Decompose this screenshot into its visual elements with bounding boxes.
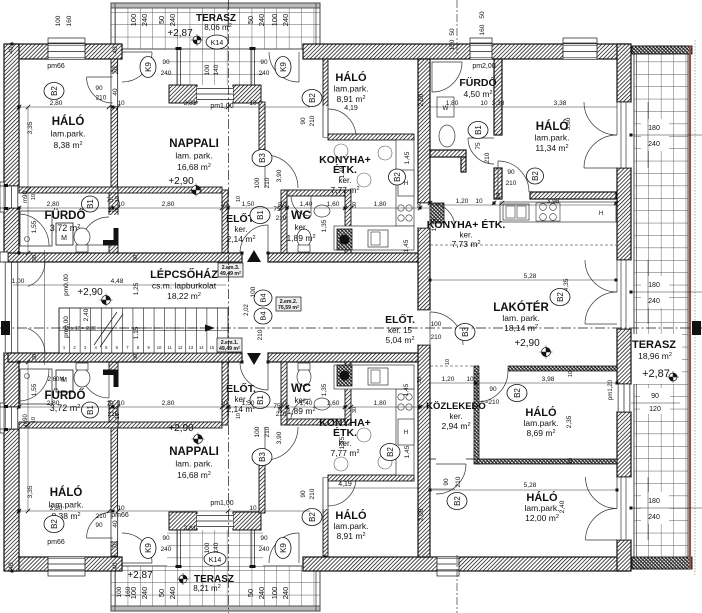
svg-text:HÁLÓ: HÁLÓ [335,71,367,84]
svg-text:10: 10 [249,505,257,512]
svg-text:1,50: 1,50 [242,201,255,208]
svg-text:1,45: 1,45 [339,165,346,178]
svg-text:90: 90 [95,85,103,92]
svg-text:B1: B1 [256,395,265,405]
svg-text:ker. 15: ker. 15 [388,326,413,335]
svg-text:40: 40 [8,562,15,570]
svg-text:10: 10 [568,371,574,377]
svg-text:10: 10 [466,376,474,383]
svg-text:240: 240 [161,546,172,553]
svg-text:lam. park.: lam. park. [502,313,539,323]
svg-text:90: 90 [162,535,170,542]
svg-text:10: 10 [445,359,451,365]
svg-text:30: 30 [352,407,358,413]
svg-text:12: 12 [178,345,183,350]
svg-text:100: 100 [55,15,62,26]
svg-text:30: 30 [32,354,38,360]
svg-text:8,06 m2: 8,06 m2 [204,23,232,32]
svg-text:pm1,00: pm1,00 [210,103,233,110]
svg-text:180: 180 [648,125,660,132]
svg-text:3,38: 3,38 [554,100,567,107]
svg-text:100: 100 [250,286,257,297]
svg-text:1,60: 1,60 [327,400,340,407]
svg-text:1,20: 1,20 [456,198,469,205]
svg-text:1,45: 1,45 [403,239,410,252]
svg-text:1,45: 1,45 [404,445,411,458]
svg-text:10: 10 [480,100,488,107]
svg-text:210: 210 [276,411,287,418]
svg-text:18,22 m2: 18,22 m2 [167,291,201,301]
svg-text:2,80: 2,80 [162,400,175,407]
svg-text:2,14 m2: 2,14 m2 [226,234,255,244]
svg-text:240: 240 [259,546,270,553]
svg-text:+2,90: +2,90 [168,423,194,434]
svg-text:240: 240 [259,70,270,77]
svg-text:50: 50 [157,589,166,597]
svg-text:B2: B2 [50,519,59,529]
svg-text:12,00 m2: 12,00 m2 [525,513,559,523]
svg-text:10: 10 [496,193,502,199]
svg-text:10: 10 [568,458,574,464]
svg-text:1,55: 1,55 [31,220,38,233]
svg-text:+2,90: +2,90 [168,176,194,187]
svg-text:30: 30 [417,377,423,383]
svg-text:pm66: pm66 [111,512,129,519]
svg-text:30: 30 [352,202,358,208]
svg-text:2,40: 2,40 [83,308,90,321]
svg-text:40: 40 [112,46,119,54]
svg-text:90: 90 [300,117,307,125]
svg-text:lam.park.: lam.park. [334,84,369,94]
svg-text:lam.park.: lam.park. [525,503,560,513]
svg-text:NAPPALI: NAPPALI [169,138,219,150]
svg-text:3,60: 3,60 [565,117,572,130]
svg-text:B2: B2 [513,388,522,398]
svg-text:ker.: ker. [295,223,308,232]
svg-text:B2: B2 [531,171,540,181]
svg-text:210: 210 [257,329,264,340]
svg-text:lam.park.: lam.park. [535,133,570,143]
svg-text:8,91 m2: 8,91 m2 [336,94,365,104]
svg-text:30: 30 [32,255,38,261]
svg-text:4,35: 4,35 [563,278,570,291]
svg-text:3,98: 3,98 [542,376,555,383]
svg-text:210: 210 [96,513,107,520]
svg-text:150: 150 [449,39,456,50]
svg-text:2,94 m2: 2,94 m2 [441,421,470,431]
svg-text:100: 100 [270,14,279,27]
svg-text:B2: B2 [50,86,59,96]
svg-text:KÖZLEKEDŐ: KÖZLEKEDŐ [426,400,486,412]
svg-text:LÉPCSŐHÁZ: LÉPCSŐHÁZ [150,268,218,281]
svg-text:2,80: 2,80 [162,201,175,208]
svg-text:WC: WC [291,208,311,222]
svg-text:90: 90 [507,169,515,176]
svg-text:10: 10 [157,345,162,350]
svg-text:B2: B2 [308,93,317,103]
svg-text:pm0,00: pm0,00 [63,316,70,338]
svg-text:210: 210 [264,177,271,188]
svg-text:11,34 m2: 11,34 m2 [535,143,568,153]
svg-text:HÁLÓ: HÁLÓ [536,120,569,133]
svg-text:HÁLÓ: HÁLÓ [50,486,83,499]
svg-text:10: 10 [236,196,242,202]
svg-text:B2: B2 [308,512,317,522]
svg-text:B3: B3 [258,153,267,163]
svg-text:180: 180 [648,282,660,289]
svg-text:90: 90 [651,393,659,400]
svg-text:49,49 m2: 49,49 m2 [219,346,240,353]
svg-text:1,89 m2: 1,89 m2 [286,406,315,416]
svg-text:240: 240 [140,587,149,600]
svg-text:1,60: 1,60 [327,201,340,208]
svg-text:TERASZ: TERASZ [632,339,676,351]
svg-text:210: 210 [96,95,107,102]
svg-text:1,50: 1,50 [242,400,255,407]
svg-text:K9: K9 [279,62,288,72]
svg-text:K9: K9 [144,543,153,553]
svg-text:1,35: 1,35 [321,219,328,232]
svg-text:8,38 m2: 8,38 m2 [53,140,82,150]
svg-text:30: 30 [417,202,423,208]
svg-text:lam.park.: lam.park. [524,418,559,428]
svg-text:K9: K9 [279,543,288,553]
svg-text:50: 50 [157,16,166,24]
svg-text:K9: K9 [144,62,153,72]
svg-text:160: 160 [479,24,486,35]
svg-text:ELŐT.: ELŐT. [226,382,256,395]
svg-text:KONYHA+ ÉTK.: KONYHA+ ÉTK. [427,218,506,231]
svg-text:1,89 m2: 1,89 m2 [286,233,315,243]
svg-text:240: 240 [281,587,290,600]
svg-text:90: 90 [489,386,497,393]
svg-text:240: 240 [257,587,266,600]
svg-text:3,90: 3,90 [276,431,283,444]
svg-text:240: 240 [161,70,172,77]
svg-text:240: 240 [168,587,177,600]
svg-text:1,80: 1,80 [374,400,387,407]
svg-text:5,04 m2: 5,04 m2 [385,335,414,345]
svg-text:16,68 m2: 16,68 m2 [177,470,211,480]
svg-text:HÁLÓ: HÁLÓ [52,115,85,128]
svg-text:1,20: 1,20 [442,376,455,383]
svg-text:3,98: 3,98 [547,198,560,205]
svg-text:40: 40 [112,88,119,96]
svg-text:140: 140 [213,64,220,75]
svg-text:+2,90: +2,90 [77,287,103,298]
svg-text:240: 240 [648,141,660,148]
svg-text:4,50 m2: 4,50 m2 [463,89,492,99]
svg-text:B2: B2 [393,172,402,182]
svg-text:ker.: ker. [235,225,248,234]
svg-text:30: 30 [133,354,139,360]
svg-text:3,81: 3,81 [184,525,197,532]
svg-text:2,80: 2,80 [47,400,60,407]
svg-text:2,80: 2,80 [50,100,63,107]
svg-text:+2,87: +2,87 [167,28,193,39]
svg-text:pm2,00: pm2,00 [472,63,495,70]
svg-text:B4: B4 [259,311,268,320]
svg-text:90: 90 [300,490,307,498]
svg-text:210: 210 [309,115,316,126]
svg-text:B1: B1 [256,210,265,220]
svg-text:10: 10 [31,194,37,200]
svg-text:100: 100 [129,14,138,27]
svg-text:14: 14 [199,345,204,350]
svg-text:B1: B1 [474,125,483,135]
svg-text:lam. park.: lam. park. [175,151,212,161]
svg-text:1,35: 1,35 [321,383,328,396]
svg-text:2,00: 2,00 [418,93,425,106]
svg-text:2,80: 2,80 [47,201,60,208]
svg-text:B1: B1 [86,405,95,415]
svg-text:1,45: 1,45 [404,151,411,164]
svg-text:16,68 m2: 16,68 m2 [177,162,211,172]
svg-text:100: 100 [270,587,279,600]
svg-text:B2: B2 [556,292,565,302]
svg-text:11: 11 [167,345,172,350]
svg-text:3,38: 3,38 [492,100,505,107]
svg-text:4,48: 4,48 [111,278,124,285]
svg-text:+2,90: +2,90 [514,338,540,349]
svg-text:ELŐT.: ELŐT. [385,313,415,326]
svg-text:8,21 m2: 8,21 m2 [193,584,221,593]
svg-text:pm66: pm66 [47,63,65,70]
svg-text:240: 240 [257,14,266,27]
svg-text:75: 75 [273,403,281,410]
svg-text:240: 240 [140,14,149,27]
svg-text:1,00: 1,00 [12,278,25,285]
svg-text:75: 75 [475,142,482,150]
svg-text:lam.park.: lam.park. [334,521,369,531]
svg-text:cs.m. lapburkolat: cs.m. lapburkolat [152,281,217,291]
svg-text:90: 90 [260,59,268,66]
svg-text:40: 40 [112,562,119,570]
svg-text:pm1,00: pm1,00 [210,500,233,507]
svg-text:3,81: 3,81 [184,100,197,107]
svg-text:lam. park.: lam. park. [175,459,212,469]
svg-text:18,96 m2: 18,96 m2 [638,351,672,361]
svg-text:10: 10 [249,100,257,107]
svg-text:240: 240 [281,14,290,27]
svg-text:NAPPALI: NAPPALI [169,446,219,458]
svg-text:90: 90 [443,478,450,486]
svg-text:210: 210 [455,476,462,487]
svg-text:5,28: 5,28 [524,273,537,280]
svg-text:2,40: 2,40 [559,500,566,513]
svg-text:8,69 m2: 8,69 m2 [526,428,555,438]
svg-text:2,02: 2,02 [244,304,250,316]
svg-text:76,59 m2: 76,59 m2 [278,305,299,312]
svg-text:+2,87: +2,87 [642,368,670,380]
svg-text:1,25: 1,25 [133,282,140,295]
svg-text:100: 100 [116,586,123,597]
svg-text:10: 10 [236,413,242,419]
svg-text:1,80: 1,80 [374,201,387,208]
svg-text:90: 90 [260,535,268,542]
svg-text:B4: B4 [259,293,268,302]
svg-text:40: 40 [112,520,119,528]
svg-text:160: 160 [125,586,132,597]
svg-text:8,91 m2: 8,91 m2 [336,531,365,541]
svg-text:240: 240 [648,514,660,521]
svg-text:100: 100 [204,542,211,553]
svg-text:50: 50 [449,28,456,36]
svg-text:15: 15 [210,345,215,350]
svg-text:B2: B2 [453,496,462,506]
svg-text:M: M [61,377,67,384]
svg-text:90: 90 [162,59,170,66]
svg-text:10: 10 [115,196,121,202]
svg-text:≈210: ≈210 [485,399,500,406]
svg-text:ker.: ker. [450,412,463,421]
svg-text:pm1,20: pm1,20 [608,379,614,400]
svg-text:100: 100 [254,426,261,437]
svg-text:B1: B1 [86,199,95,209]
svg-text:70: 70 [112,66,119,74]
svg-text:50: 50 [246,589,255,597]
svg-text:210: 210 [484,152,491,163]
svg-text:H: H [404,430,408,436]
svg-text:13: 13 [188,345,193,350]
svg-text:2,35: 2,35 [566,415,573,428]
svg-text:7,77 m2: 7,77 m2 [330,185,359,195]
svg-text:49,49 m2: 49,49 m2 [220,271,241,278]
svg-text:75: 75 [106,197,114,204]
svg-text:210: 210 [264,426,271,437]
svg-text:1,35: 1,35 [431,218,438,231]
svg-text:100: 100 [254,177,261,188]
svg-text:WC: WC [291,381,311,395]
svg-text:120: 120 [649,406,661,413]
svg-text:4,19: 4,19 [344,105,358,112]
svg-text:2,00: 2,00 [418,508,425,521]
svg-text:K14: K14 [211,40,224,47]
svg-text:4,19: 4,19 [338,481,352,488]
svg-text:50: 50 [246,16,255,24]
svg-text:100: 100 [431,321,442,328]
svg-text:K14: K14 [209,557,222,564]
svg-text:50: 50 [479,11,486,19]
svg-text:10: 10 [475,198,483,205]
svg-text:30: 30 [133,255,139,261]
svg-text:90: 90 [95,522,103,529]
svg-text:100: 100 [204,64,211,75]
svg-text:240: 240 [168,14,177,27]
svg-text:1,80: 1,80 [446,100,459,107]
svg-text:140: 140 [213,542,220,553]
svg-text:1,45: 1,45 [339,436,346,449]
svg-text:1,45: 1,45 [403,383,410,396]
svg-text:160: 160 [66,15,73,26]
svg-text:180: 180 [648,498,660,505]
svg-text:10: 10 [115,413,121,419]
svg-text:240: 240 [648,298,660,305]
svg-text:H: H [599,211,603,217]
svg-text:10: 10 [31,417,37,423]
svg-text:M: M [61,235,67,242]
svg-text:40: 40 [8,46,15,54]
svg-text:210: 210 [309,488,316,499]
svg-text:pm66: pm66 [47,539,65,546]
svg-text:5,28: 5,28 [524,482,537,489]
svg-text:B3: B3 [258,452,267,462]
svg-text:7,73 m2: 7,73 m2 [451,239,480,249]
svg-text:210: 210 [506,180,517,187]
svg-text:lam.park.: lam.park. [51,129,86,139]
svg-text:3,90: 3,90 [276,169,283,182]
svg-text:B2: B2 [386,447,395,457]
svg-text:210: 210 [431,334,442,341]
svg-text:70: 70 [112,541,119,549]
svg-text:FÜRDŐ: FÜRDŐ [459,76,496,89]
svg-text:210: 210 [276,215,287,222]
svg-text:H: H [404,181,408,187]
svg-text:+2,87: +2,87 [127,570,153,581]
